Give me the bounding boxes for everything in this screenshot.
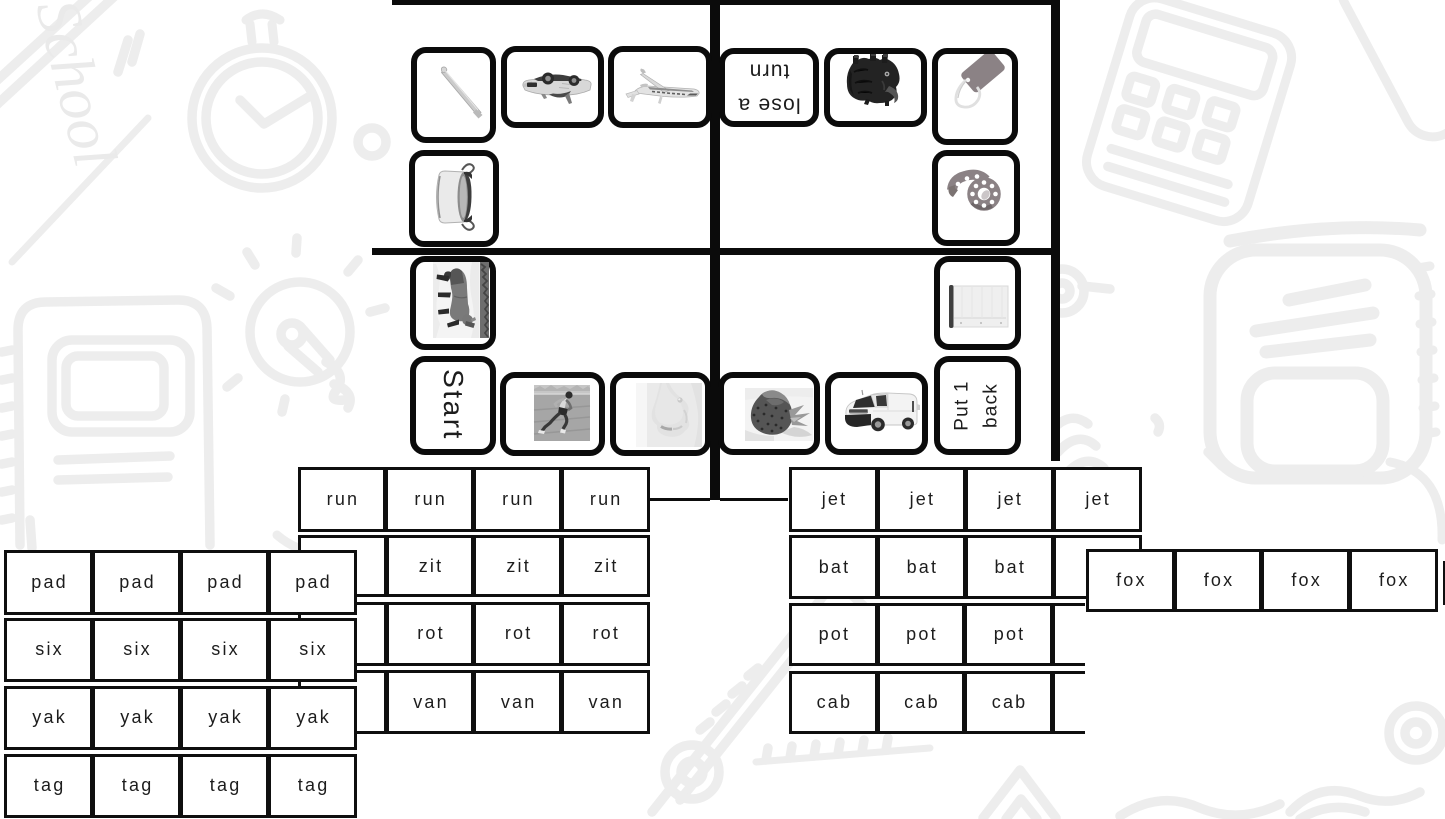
svg-text:School: School	[22, 0, 129, 173]
